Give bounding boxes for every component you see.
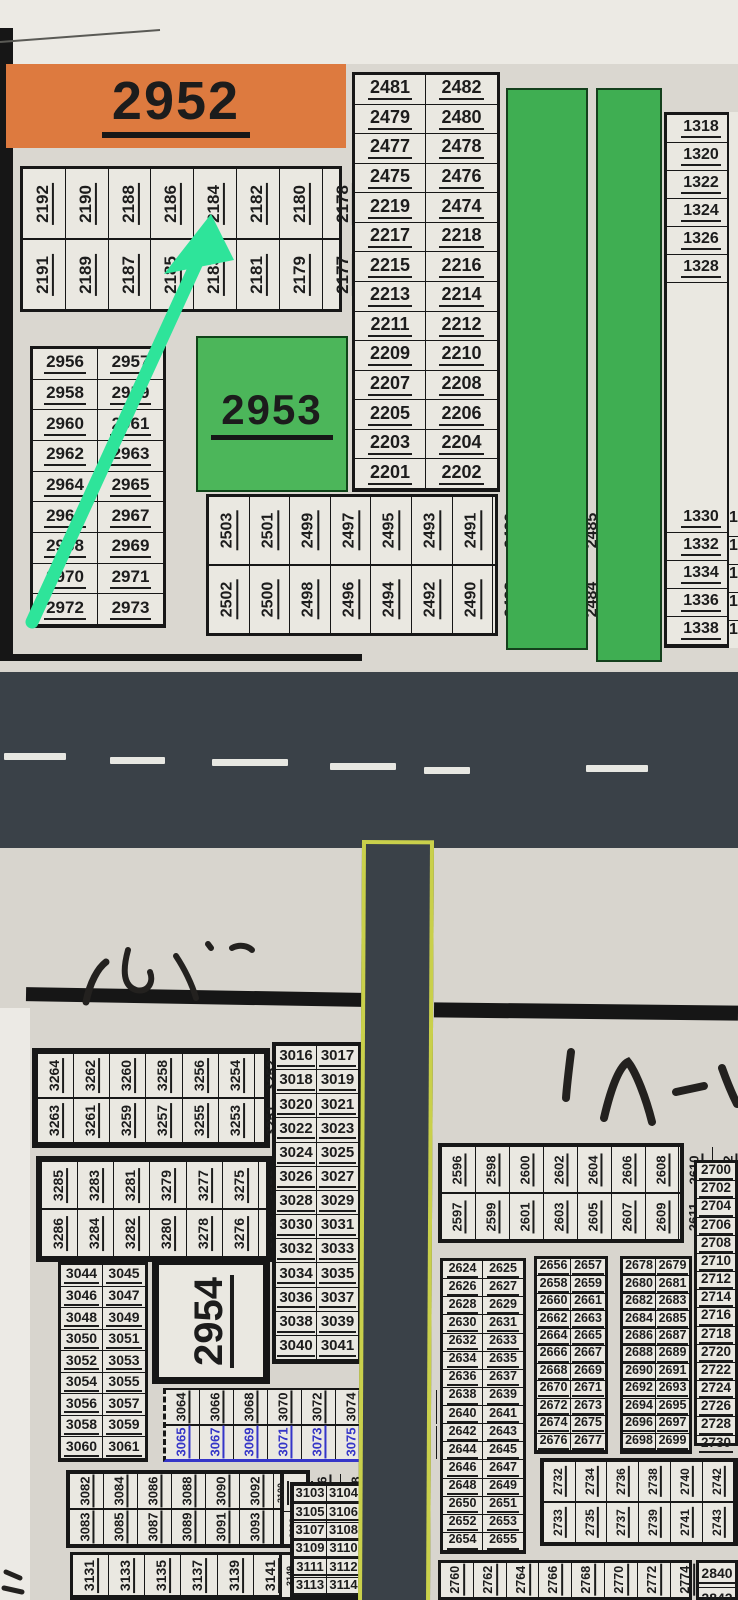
plot-cell: 2667: [571, 1346, 605, 1363]
plot-cell: 2498: [289, 566, 330, 633]
plot-cell: 3253: [218, 1099, 254, 1142]
plot-cell: 2503: [209, 497, 249, 564]
plot-cell: 2663: [571, 1311, 605, 1328]
plot-cell: 2208: [426, 371, 497, 401]
plot-cell: 3018: [276, 1070, 317, 1094]
plot-cell: 2677: [571, 1434, 605, 1451]
plot-cell: 2607: [611, 1194, 645, 1239]
plot-strip-3265-3286: 3285328332813279327732753273327132693267…: [36, 1156, 272, 1262]
plot-cell: 2720: [697, 1344, 735, 1362]
plot-cell: 3047: [103, 1287, 145, 1309]
plot-cell: 3106: [327, 1504, 360, 1522]
plot-cell: 3022: [276, 1118, 317, 1142]
plot-cell: 2772: [637, 1563, 670, 1597]
plot-cell: 1324: [667, 199, 735, 227]
plot-cell: 2706: [697, 1217, 735, 1235]
plot-strip-2760-2786: 2760276227642766276827702772277427762778…: [438, 1560, 692, 1600]
plot-cell: 2760: [441, 1563, 473, 1597]
block-2952-label: 2952: [102, 74, 250, 138]
plot-cell: 2652: [443, 1515, 483, 1533]
plot-cell: 3048: [61, 1308, 103, 1330]
plot-cell: 3019: [317, 1070, 358, 1094]
plot-cell: 3261: [73, 1099, 109, 1142]
plot-cell: 2973: [98, 594, 163, 625]
plot-cell: 3027: [317, 1167, 358, 1191]
plot-cell: 2726: [697, 1398, 735, 1416]
plot-cell: 3087: [137, 1510, 171, 1544]
plot-cell: 2186: [150, 169, 193, 238]
plot-cell: 2665: [571, 1329, 605, 1346]
plot-cell: 1332: [667, 533, 735, 561]
plot-cell: 3083: [70, 1510, 103, 1544]
plot-cell: 2216: [426, 252, 497, 282]
plot-cell: 3037: [317, 1288, 358, 1312]
plot-cell: 2202: [426, 459, 497, 489]
plot-cell: 2654: [443, 1533, 483, 1551]
plot-cell: 2724: [697, 1380, 735, 1398]
plot-cell: 1336: [667, 589, 735, 617]
plot-cell: 3030: [276, 1215, 317, 1239]
plot-cell: 2671: [571, 1381, 605, 1398]
plot-cell: 2687: [656, 1329, 689, 1346]
plot-table-3016-3041: 3016 3017 3018 3019 3020 3021 3022 3023 …: [272, 1042, 362, 1364]
plot-map-photo: 2952 21922190218821862184218221802178217…: [0, 0, 738, 1600]
plot-cell: 2704: [697, 1198, 735, 1216]
plot-cell: 2653: [483, 1515, 523, 1533]
plot-cell: 2625: [483, 1261, 523, 1279]
plot-cell-blue-ink: 3067: [199, 1426, 233, 1460]
plot-cell: 2499: [289, 497, 330, 564]
plot-cell: 2609: [645, 1194, 679, 1239]
plot-strip-3131-3147: 313131333135313731393141314331453147: [70, 1552, 282, 1600]
plot-cell: 1322: [667, 171, 735, 199]
plot-cell: 2692: [623, 1381, 656, 1398]
empty-plot-cell: [667, 283, 735, 505]
plot-cell: 3103: [294, 1486, 327, 1504]
plot-column-2700-2730: 2700270227042706270827102712271427162718…: [694, 1160, 738, 1446]
plot-cell: 2742: [702, 1462, 734, 1501]
plot-cell: 3035: [317, 1263, 358, 1287]
plot-cell: 2736: [606, 1462, 638, 1501]
plot-cell: 2639: [483, 1388, 523, 1406]
plot-cell: 2743: [702, 1503, 734, 1542]
plot-cell: 3054: [61, 1373, 103, 1395]
plot-cell: 2478: [426, 134, 497, 164]
lane-marking: [212, 759, 288, 766]
plot-cell: 3284: [77, 1210, 113, 1256]
plot-cell: 3280: [149, 1210, 185, 1256]
plot-cell: 3025: [317, 1143, 358, 1167]
plot-cell: 3028: [276, 1191, 317, 1215]
plot-cell: 2668: [537, 1364, 571, 1381]
plot-cell: 2740: [670, 1462, 702, 1501]
sheet-bottom-border: [0, 654, 362, 661]
plot-cell: 2190: [65, 169, 108, 238]
green-strip-left: [506, 88, 588, 650]
plot-cell: 2211: [355, 312, 426, 342]
plot-cell: 2972: [33, 594, 98, 625]
plot-cell: 2219: [355, 193, 426, 223]
plot-box-2840-2842: 28402842: [696, 1560, 738, 1600]
plot-cell: 2207: [355, 371, 426, 401]
block-2953: 2953: [196, 336, 348, 492]
plot-cell: 2608: [645, 1147, 679, 1192]
plot-cell: 3050: [61, 1330, 103, 1352]
plot-cell: 2597: [442, 1194, 475, 1239]
section-divider-right: [434, 1002, 738, 1020]
plot-cell: 2768: [571, 1563, 604, 1597]
plot-cell: 2966: [33, 502, 98, 533]
plot-cell: 2185: [150, 240, 193, 309]
plot-cell: 2666: [537, 1346, 571, 1363]
plot-cell-blue-ink: 3069: [233, 1426, 267, 1460]
plot-cell: 3275: [222, 1162, 258, 1208]
plot-cell: 3038: [276, 1312, 317, 1336]
plot-cell: 2672: [537, 1399, 571, 1416]
plot-cell: 2644: [443, 1442, 483, 1460]
plot-cell: 2762: [473, 1563, 506, 1597]
plot-cell: 3264: [38, 1054, 73, 1097]
plot-cell: 3093: [239, 1510, 273, 1544]
plot-cell: 3032: [276, 1239, 317, 1263]
lane-marking: [110, 757, 165, 764]
plot-cell: 3259: [109, 1099, 145, 1142]
plot-cell: 3091: [205, 1510, 239, 1544]
plot-cell: 2697: [656, 1416, 689, 1433]
plot-cell: 3064: [166, 1390, 199, 1424]
plot-cell: 2492: [411, 566, 452, 633]
plot-cell: 2209: [355, 341, 426, 371]
plot-cell: 2645: [483, 1442, 523, 1460]
plot-cell: 3046: [61, 1287, 103, 1309]
plot-cell: 2970: [33, 564, 98, 595]
plot-cell: 2606: [611, 1147, 645, 1192]
plot-cell: 3263: [38, 1099, 73, 1142]
plot-cell: 2183: [193, 240, 236, 309]
plot-cell: 2770: [604, 1563, 637, 1597]
plot-cell: 2678: [623, 1259, 656, 1276]
plot-cell: 3258: [145, 1054, 181, 1097]
vertical-road: [358, 840, 434, 1600]
plot-cell: 2737: [606, 1503, 638, 1542]
plot-cell: 2962: [33, 441, 98, 472]
plot-cell: 2481: [355, 75, 426, 105]
plot-cell: 2476: [426, 164, 497, 194]
block-2954: 2954: [152, 1258, 270, 1384]
plot-cell: 2598: [475, 1147, 509, 1192]
plot-cell: 2655: [483, 1533, 523, 1551]
plot-cell: 2744: [733, 1462, 738, 1501]
plot-cell: 2662: [537, 1311, 571, 1328]
plot-cell: 3109: [294, 1541, 327, 1559]
plot-cell: 2632: [443, 1334, 483, 1352]
plot-cell: 3104: [327, 1486, 360, 1504]
plot-table-3103-3114: 3103 3104 3105 3106 3107 3108 3109 3110 …: [290, 1482, 364, 1600]
plot-cell: 2480: [426, 105, 497, 135]
lane-marking: [424, 767, 470, 774]
plot-cell: 2627: [483, 1279, 523, 1297]
plot-cell: 3276: [222, 1210, 258, 1256]
plot-cell: 3072: [301, 1390, 335, 1424]
plot-cell: 1320: [667, 143, 735, 171]
plot-cell: 2218: [426, 223, 497, 253]
plot-table-2678-2699: 2678 2679 2680 2681 2682 2683 2684 2685 …: [620, 1256, 692, 1454]
plot-cell: 2191: [23, 240, 65, 309]
plot-cell-blue-ink: 3073: [301, 1426, 335, 1460]
plot-cell-clipped: 13: [729, 537, 738, 565]
plot-cell: 3277: [186, 1162, 222, 1208]
plot-cell: 2684: [623, 1311, 656, 1328]
plot-cell: 2686: [623, 1329, 656, 1346]
plot-cell: 3031: [317, 1215, 358, 1239]
plot-cell: 2842: [699, 1587, 735, 1600]
plot-cell: 2634: [443, 1352, 483, 1370]
plot-cell: 3092: [239, 1474, 273, 1508]
plot-cell: 3061: [103, 1437, 145, 1459]
plot-cell: 2210: [426, 341, 497, 371]
plot-cell: 2502: [209, 566, 249, 633]
plot-cell: 1330: [667, 505, 735, 533]
plot-cell: 3282: [113, 1210, 149, 1256]
plot-cell: 2204: [426, 430, 497, 460]
plot-cell: 2479: [355, 105, 426, 135]
plot-cell: 2669: [571, 1364, 605, 1381]
plot-cell: 2735: [575, 1503, 607, 1542]
plot-cell: 3026: [276, 1167, 317, 1191]
plot-cell: 3066: [199, 1390, 233, 1424]
plot-cell: 3034: [276, 1263, 317, 1287]
plot-cell: 2660: [537, 1294, 571, 1311]
plot-cell: 3254: [218, 1054, 254, 1097]
plot-cell-clipped: 13: [729, 621, 738, 648]
plot-cell: 3029: [317, 1191, 358, 1215]
plot-cell: 2679: [656, 1259, 689, 1276]
plot-cell: 3040: [276, 1336, 317, 1360]
plot-cell: 3085: [103, 1510, 137, 1544]
plot-cell: 2730: [697, 1435, 735, 1453]
plot-cell: 2494: [370, 566, 411, 633]
plot-cell: 3257: [145, 1099, 181, 1142]
plot-cell: 2604: [577, 1147, 611, 1192]
plot-cell: 3036: [276, 1288, 317, 1312]
plot-strip-3082-3099: 308230843086308830903092309430963098 308…: [66, 1470, 284, 1548]
plot-cell: 2694: [623, 1399, 656, 1416]
plot-cell: 2201: [355, 459, 426, 489]
plot-cell: 3039: [317, 1312, 358, 1336]
plot-cell: 2714: [697, 1289, 735, 1307]
plot-cell: 2184: [193, 169, 236, 238]
plot-cell: 2682: [623, 1294, 656, 1311]
green-strip-right: [596, 88, 662, 662]
lane-marking: [586, 765, 648, 772]
plot-cell: 3285: [42, 1162, 77, 1208]
plot-cell: 2661: [571, 1294, 605, 1311]
plot-cell: 2206: [426, 400, 497, 430]
plot-cell: 1328: [667, 255, 735, 283]
plot-table-2956-2973: 2956 2957 2958 2959 2960 2961 2962 2963 …: [30, 346, 166, 628]
plot-cell: 2960: [33, 410, 98, 441]
plot-cell: 2745: [733, 1503, 738, 1542]
plot-cell: 2732: [544, 1462, 575, 1501]
plot-cell: 3052: [61, 1351, 103, 1373]
plot-cell: 2490: [452, 566, 493, 633]
plot-cell: 2691: [656, 1364, 689, 1381]
plot-cell: 3260: [109, 1054, 145, 1097]
plot-strip-3245-3264: 3264326232603258325632543252325032483246…: [32, 1048, 270, 1148]
plot-cell: 2712: [697, 1271, 735, 1289]
plot-cell-clipped: 13: [729, 565, 738, 593]
plot-cell-clipped: 13: [729, 593, 738, 621]
plot-cell: 3105: [294, 1504, 327, 1522]
plot-cell: 2179: [279, 240, 322, 309]
plot-cell: 3055: [103, 1373, 145, 1395]
plot-cell: 3041: [317, 1336, 358, 1360]
plot-cell-blue-ink: 3065: [166, 1426, 199, 1460]
lane-marking: [330, 763, 396, 770]
plot-cell: 2658: [537, 1276, 571, 1293]
plot-cell: 2642: [443, 1424, 483, 1442]
plot-cell: 2626: [443, 1279, 483, 1297]
plot-cell-blue-ink: 3071: [267, 1426, 301, 1460]
plot-cell: 3044: [61, 1265, 103, 1287]
plot-cell: 2640: [443, 1406, 483, 1424]
plot-cell: 2501: [249, 497, 290, 564]
plot-cell: 2635: [483, 1352, 523, 1370]
plot-cell: 2630: [443, 1315, 483, 1333]
plot-cell: 2182: [236, 169, 279, 238]
plot-table-2624-2655: 2624 2625 2626 2627 2628 2629 2630 2631 …: [440, 1258, 526, 1554]
plot-cell: 3057: [103, 1394, 145, 1416]
plot-cell: 3049: [103, 1308, 145, 1330]
plot-cell: 2708: [697, 1235, 735, 1253]
plot-cell: 2638: [443, 1388, 483, 1406]
plot-cell: 2657: [571, 1259, 605, 1276]
plot-cell: 2683: [656, 1294, 689, 1311]
plot-cell: 3137: [180, 1555, 216, 1595]
plot-cell: 3059: [103, 1416, 145, 1438]
block-2954-label: 2954: [188, 1275, 233, 1368]
plot-cell: 2969: [98, 533, 163, 564]
plot-cell: 2641: [483, 1406, 523, 1424]
plot-cell: 3133: [108, 1555, 144, 1595]
plot-cell: 2722: [697, 1362, 735, 1380]
plot-cell: 2187: [108, 240, 151, 309]
plot-cell: 2192: [23, 169, 65, 238]
plot-cell: 3088: [171, 1474, 205, 1508]
plot-cell: 2628: [443, 1297, 483, 1315]
plot-cell: 2646: [443, 1460, 483, 1478]
top-white-band: [0, 0, 738, 64]
bottom-sheet-left-margin: [0, 1008, 30, 1600]
plot-cell: 3278: [186, 1210, 222, 1256]
plot-cell: 2636: [443, 1370, 483, 1388]
plot-cell: 3114: [327, 1578, 360, 1596]
plot-cell: 2700: [697, 1163, 735, 1180]
plot-cell: 2958: [33, 380, 98, 411]
plot-cell: 3086: [137, 1474, 171, 1508]
plot-cell: 2957: [98, 349, 163, 380]
plot-cell: 2741: [670, 1503, 702, 1542]
plot-cell: 2181: [236, 240, 279, 309]
plot-cell: 1338: [667, 617, 735, 645]
plot-cell: 2624: [443, 1261, 483, 1279]
plot-cell: 2673: [571, 1399, 605, 1416]
plot-cell: 2688: [623, 1346, 656, 1363]
plot-cell: 2965: [98, 472, 163, 503]
plot-cell: 2497: [330, 497, 371, 564]
plot-cell: 2650: [443, 1497, 483, 1515]
plot-cell: 3024: [276, 1143, 317, 1167]
plot-cell: 3256: [182, 1054, 218, 1097]
plot-cell: 3056: [61, 1394, 103, 1416]
plot-cell: 2968: [33, 533, 98, 564]
plot-cell: 2629: [483, 1297, 523, 1315]
plot-cell: 3108: [327, 1523, 360, 1541]
plot-cell: 2710: [697, 1253, 735, 1271]
plot-cell: 2695: [656, 1399, 689, 1416]
plot-cell: 2215: [355, 252, 426, 282]
plot-cell: 2651: [483, 1497, 523, 1515]
plot-cell: 2674: [537, 1416, 571, 1433]
plot-cell: 1318: [667, 115, 735, 143]
plot-cell: 2689: [656, 1346, 689, 1363]
plot-cell: 2840: [699, 1563, 735, 1587]
plot-table-2656-2677: 2656 2657 2658 2659 2660 2661 2662 2663 …: [534, 1256, 608, 1454]
plot-column-clipped-right: 1313131313: [727, 112, 738, 648]
plot-cell: 3262: [73, 1054, 109, 1097]
plot-cell: 2188: [108, 169, 151, 238]
plot-cell: 2963: [98, 441, 163, 472]
plot-cell: 2670: [537, 1381, 571, 1398]
plot-cell: 3286: [42, 1210, 77, 1256]
plot-cell: 3017: [317, 1046, 358, 1070]
plot-cell: 2699: [656, 1434, 689, 1451]
plot-strip-3064-3081: 306430663068307030723074307630783080 306…: [163, 1388, 363, 1462]
plot-cell: 2680: [623, 1276, 656, 1293]
plot-cell: 3023: [317, 1118, 358, 1142]
plot-cell: 2681: [656, 1276, 689, 1293]
plot-table-3044-3061: 3044 3045 3046 3047 3048 3049 3050 3051 …: [58, 1262, 148, 1462]
plot-cell: 3068: [233, 1390, 267, 1424]
plot-cell: 2656: [537, 1259, 571, 1276]
plot-cell: 2728: [697, 1416, 735, 1434]
plot-strip-2482-2503: 2503250124992497249524932491248924872485…: [206, 494, 498, 636]
plot-cell: 2212: [426, 312, 497, 342]
plot-cell: 3021: [317, 1094, 358, 1118]
plot-cell: 2180: [279, 169, 322, 238]
plot-cell: 3135: [144, 1555, 180, 1595]
plot-cell: 2718: [697, 1326, 735, 1344]
plot-cell: 3283: [77, 1162, 113, 1208]
plot-cell: 2491: [452, 497, 493, 564]
plot-cell: 3058: [61, 1416, 103, 1438]
plot-cell: 2734: [575, 1462, 607, 1501]
plot-cell: 2633: [483, 1334, 523, 1352]
plot-cell: 2214: [426, 282, 497, 312]
plot-cell: 2602: [543, 1147, 577, 1192]
plot-cell: 2764: [506, 1563, 539, 1597]
plot-cell: 2203: [355, 430, 426, 460]
plot-cell: 2482: [426, 75, 497, 105]
plot-cell: 1326: [667, 227, 735, 255]
plot-cell: 3111: [294, 1559, 327, 1577]
plot-cell: 2733: [544, 1503, 575, 1542]
plot-cell: 2643: [483, 1424, 523, 1442]
plot-cell: 2475: [355, 164, 426, 194]
plot-cell: 2664: [537, 1329, 571, 1346]
plot-cell: 2631: [483, 1315, 523, 1333]
plot-cell: 3107: [294, 1523, 327, 1541]
